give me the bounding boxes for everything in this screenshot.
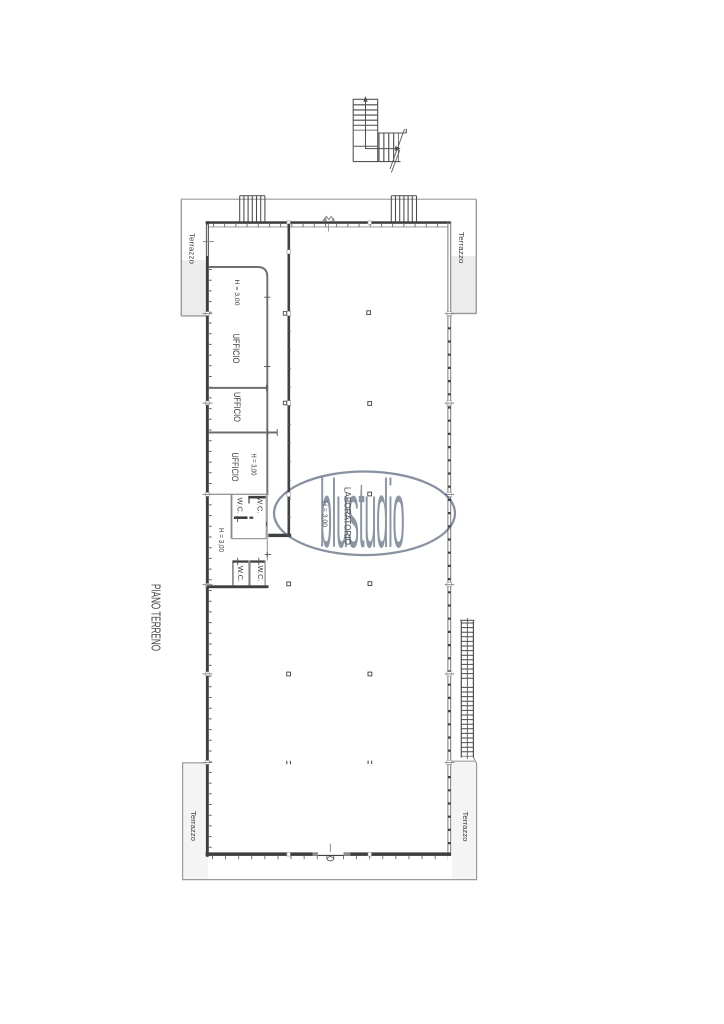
svg-text:W.C.: W.C. xyxy=(236,566,243,582)
svg-text:Terrazzo: Terrazzo xyxy=(188,233,197,264)
svg-text:UFFICIO: UFFICIO xyxy=(230,453,240,482)
svg-text:W.C.: W.C. xyxy=(256,566,263,582)
svg-text:H = 3,00: H = 3,00 xyxy=(233,280,240,306)
svg-text:H = 3,00: H = 3,00 xyxy=(250,454,257,476)
svg-text:Terrazzo: Terrazzo xyxy=(457,232,466,264)
svg-text:UFFICIO: UFFICIO xyxy=(232,392,242,422)
svg-text:PIANO TERRENO: PIANO TERRENO xyxy=(148,584,163,651)
svg-text:H = 3,00: H = 3,00 xyxy=(217,528,224,552)
svg-text:Terrazzo: Terrazzo xyxy=(461,812,470,842)
svg-text:W.C.: W.C. xyxy=(255,497,262,514)
svg-text:Terrazzo: Terrazzo xyxy=(189,811,198,841)
svg-text:W.C.: W.C. xyxy=(236,498,243,515)
svg-text:blustudio: blustudio xyxy=(320,460,405,567)
svg-text:UFFICIO: UFFICIO xyxy=(231,334,241,364)
